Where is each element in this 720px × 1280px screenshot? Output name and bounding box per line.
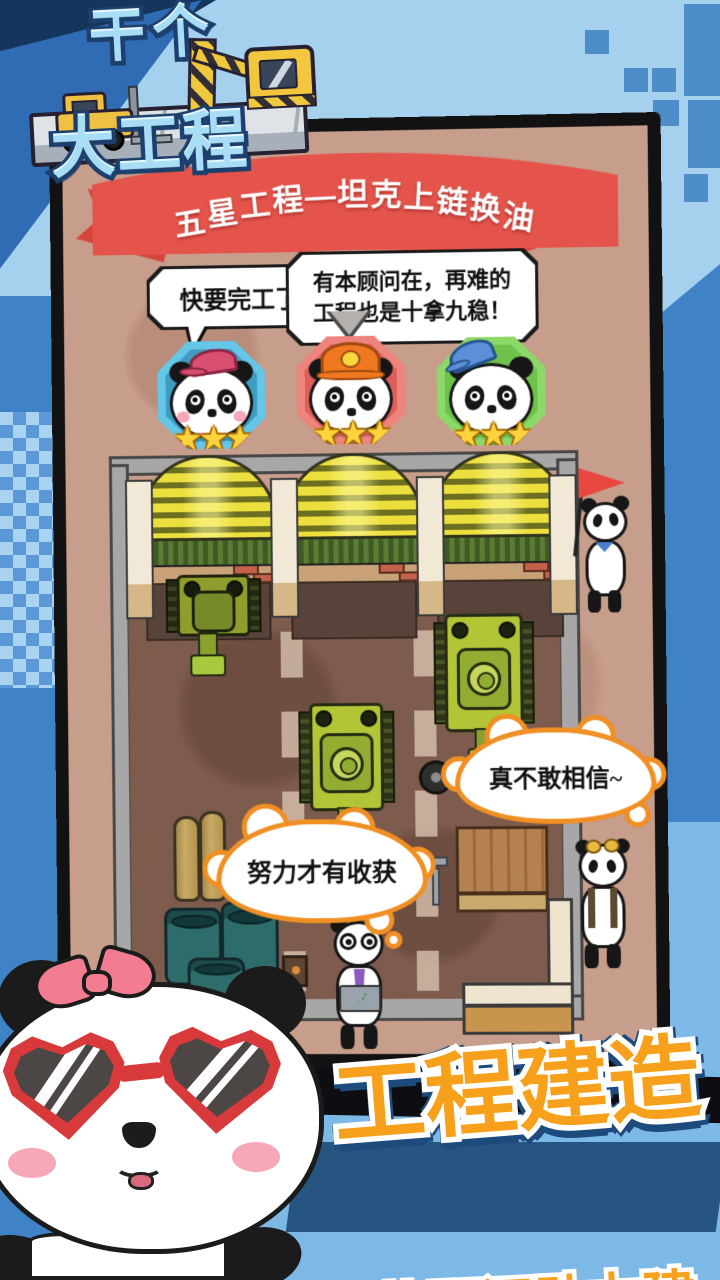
game-logo: 干个干个 大工程大工程	[14, 0, 322, 184]
tank-3[interactable]	[433, 613, 535, 732]
wooden-crates	[456, 826, 549, 895]
goggles-icon	[585, 840, 601, 854]
game-screen: 真不敢相信~ 努力才有收获 五星工程—坦克上链换油 快要完工了！	[0, 0, 720, 1280]
advisor-avatar-2[interactable]: ★★★	[296, 335, 405, 445]
speech-bubble-2: 有本顾问在，再难的 工程也是十拿九稳！	[286, 248, 539, 346]
cloud-bubble-2: 努力才有收获	[216, 819, 429, 924]
advisor-avatar-3[interactable]: ★★★	[436, 336, 546, 446]
game-board-panel: 真不敢相信~ 努力才有收获 五星工程—坦克上链换油 快要完工了！	[49, 112, 671, 1080]
flag-panda[interactable]	[564, 467, 647, 654]
gas-cylinders	[173, 816, 201, 902]
star-rating: ★★★	[437, 414, 546, 456]
logo-text-bottom: 大工程大工程	[49, 107, 272, 188]
pixel-decoration	[684, 4, 720, 96]
goggles-panda[interactable]	[573, 829, 645, 980]
panda-mascot	[0, 950, 340, 1280]
crane-cab	[244, 44, 317, 110]
hangar-bay-2	[291, 580, 418, 639]
star-rating: ★★★	[297, 413, 405, 454]
tank-2[interactable]	[298, 703, 395, 812]
logo-text-top: 干个干个	[88, 3, 231, 70]
cloud-text: 真不敢相信~	[489, 758, 623, 794]
panda-cheek	[8, 1148, 56, 1178]
bow-icon	[34, 946, 164, 1038]
corner-wall	[462, 1004, 574, 1034]
cloud-bubble-1: 真不敢相信~	[454, 727, 656, 825]
tank-1[interactable]	[166, 574, 262, 637]
advisor-avatar-1[interactable]: ★★★	[157, 340, 265, 449]
laptop-icon	[339, 985, 381, 1012]
panda-cheek	[232, 1142, 280, 1172]
cloud-text: 努力才有收获	[247, 853, 397, 890]
star-rating: ★★★	[158, 418, 266, 459]
panda-tongue	[128, 1172, 154, 1190]
